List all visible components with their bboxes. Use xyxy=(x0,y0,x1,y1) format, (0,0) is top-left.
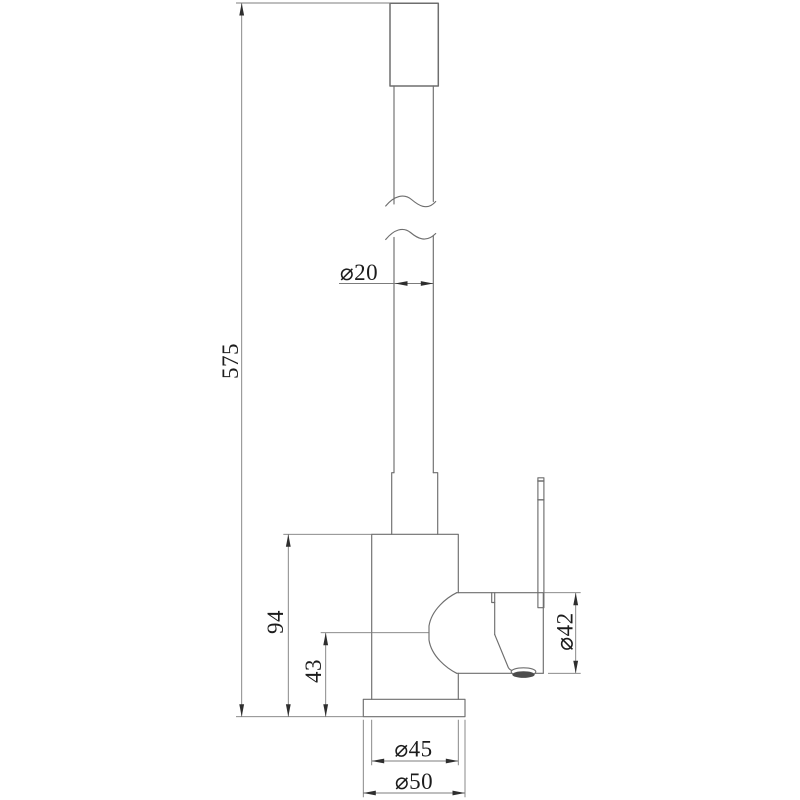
handle-front-diagonal xyxy=(495,635,516,671)
dim-94-lines xyxy=(283,534,371,716)
arrow-20-left xyxy=(395,281,408,286)
dim-label-total-height: 575 xyxy=(218,343,243,379)
arrow-575-up xyxy=(239,3,244,16)
body-outline xyxy=(372,534,459,699)
arrow-45-left xyxy=(372,759,385,764)
dim-label-body-height: 94 xyxy=(263,610,288,634)
lever-rod-ticks xyxy=(538,481,544,500)
arrow-42-down xyxy=(573,661,578,674)
faucet-technical-drawing: 575 ⌀20 94 43 ⌀42 ⌀45 ⌀50 xyxy=(0,0,800,800)
break-wave-top xyxy=(386,196,436,207)
arrow-43-up xyxy=(323,633,328,646)
dimension-lines xyxy=(236,3,581,797)
lever-rod xyxy=(538,478,544,608)
dim-label-head-diameter: ⌀42 xyxy=(553,612,578,650)
arrow-94-down xyxy=(286,704,291,717)
arrow-43-down xyxy=(323,704,328,717)
dim-43-lines xyxy=(321,633,429,717)
spout-tube-lower xyxy=(394,236,433,473)
arrow-50-left xyxy=(363,791,376,796)
dimension-labels: 575 ⌀20 94 43 ⌀42 ⌀45 ⌀50 xyxy=(218,260,578,794)
dim-575-lines xyxy=(236,3,390,717)
dim-label-spout-pivot-height: 43 xyxy=(301,659,326,683)
dim-label-tube-diameter: ⌀20 xyxy=(340,260,378,285)
arrow-94-up xyxy=(286,534,291,547)
arrow-45-right xyxy=(446,759,459,764)
arrow-575-down xyxy=(239,704,244,717)
neck-outline xyxy=(392,473,438,535)
faucet-outline xyxy=(363,3,544,716)
arrow-42-up xyxy=(573,593,578,606)
arrow-20-right xyxy=(421,281,434,286)
base-flange-outline xyxy=(363,699,465,716)
arrow-50-right xyxy=(453,791,466,796)
cartridge-bulge xyxy=(429,593,457,674)
break-wave-bottom xyxy=(386,229,436,239)
spout-tube-upper xyxy=(394,86,433,204)
dim-label-base-diameter: ⌀50 xyxy=(395,769,433,794)
aerator-face xyxy=(512,671,534,678)
dim-label-body-diameter: ⌀45 xyxy=(394,737,432,762)
drawing-canvas: 575 ⌀20 94 43 ⌀42 ⌀45 ⌀50 xyxy=(0,0,800,800)
spray-head-outline xyxy=(390,3,438,86)
